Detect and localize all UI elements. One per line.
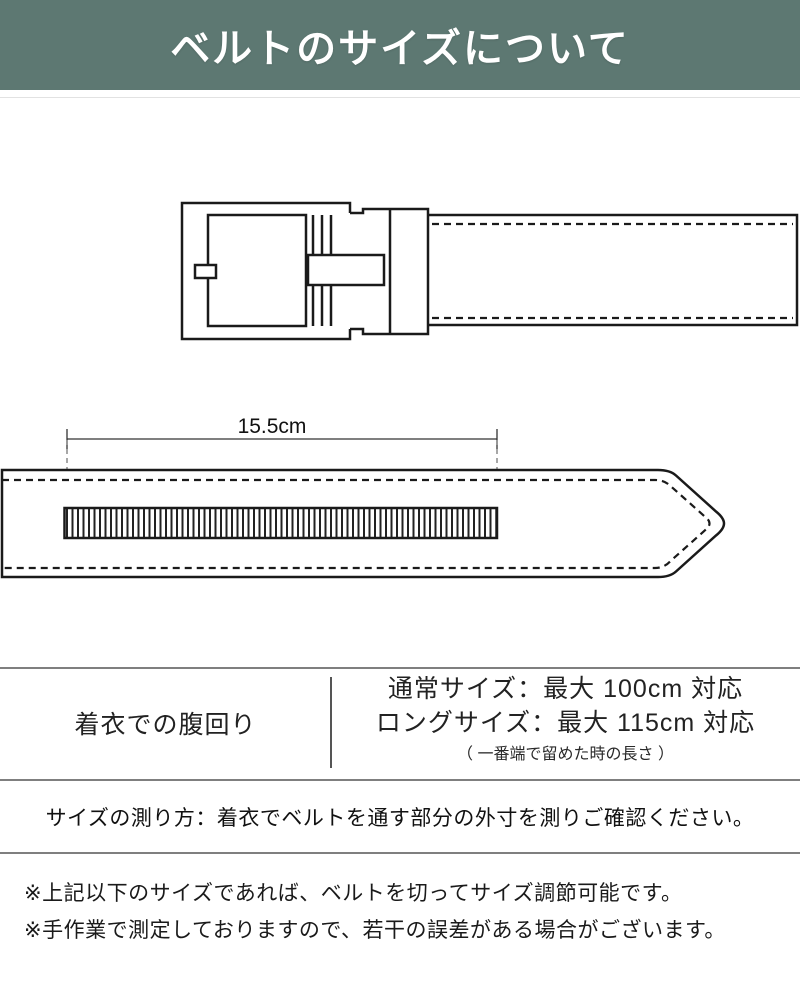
page-root: ベルトのサイズについて 15.5cm bbox=[0, 0, 800, 1000]
table-bottom-rule bbox=[0, 779, 800, 781]
prong-anchor bbox=[195, 265, 216, 278]
section-rule bbox=[0, 852, 800, 854]
footnote-2: ※手作業で測定しておりますので、若干の誤差がある場合がございます。 bbox=[24, 914, 726, 944]
header-banner: ベルトのサイズについて bbox=[0, 0, 800, 90]
page-title: ベルトのサイズについて bbox=[170, 16, 630, 74]
header-underline bbox=[0, 97, 800, 98]
size-normal: 通常サイズ：最大 100cm 対応 bbox=[388, 672, 743, 706]
measure-instruction: サイズの測り方：着衣でベルトを通す部分の外寸を測りご確認ください。 bbox=[0, 802, 800, 832]
buckle-prong bbox=[308, 255, 384, 285]
dimension-label: 15.5cm bbox=[238, 415, 307, 438]
waist-label: 着衣での腹回り bbox=[0, 667, 331, 779]
belt-strap bbox=[420, 215, 797, 325]
size-note: （ 一番端で留めた時の長さ ） bbox=[457, 744, 674, 766]
size-info-cell: 通常サイズ：最大 100cm 対応 ロングサイズ：最大 115cm 対応 （ 一… bbox=[331, 672, 800, 778]
footnote-1: ※上記以下のサイズであれば、ベルトを切ってサイズ調節可能です。 bbox=[24, 877, 682, 907]
size-long: ロングサイズ：最大 115cm 対応 bbox=[376, 706, 755, 740]
buckle-inner-frame bbox=[208, 215, 306, 326]
strap-diagram: 15.5cm bbox=[0, 400, 800, 610]
buckle-diagram bbox=[0, 190, 800, 360]
